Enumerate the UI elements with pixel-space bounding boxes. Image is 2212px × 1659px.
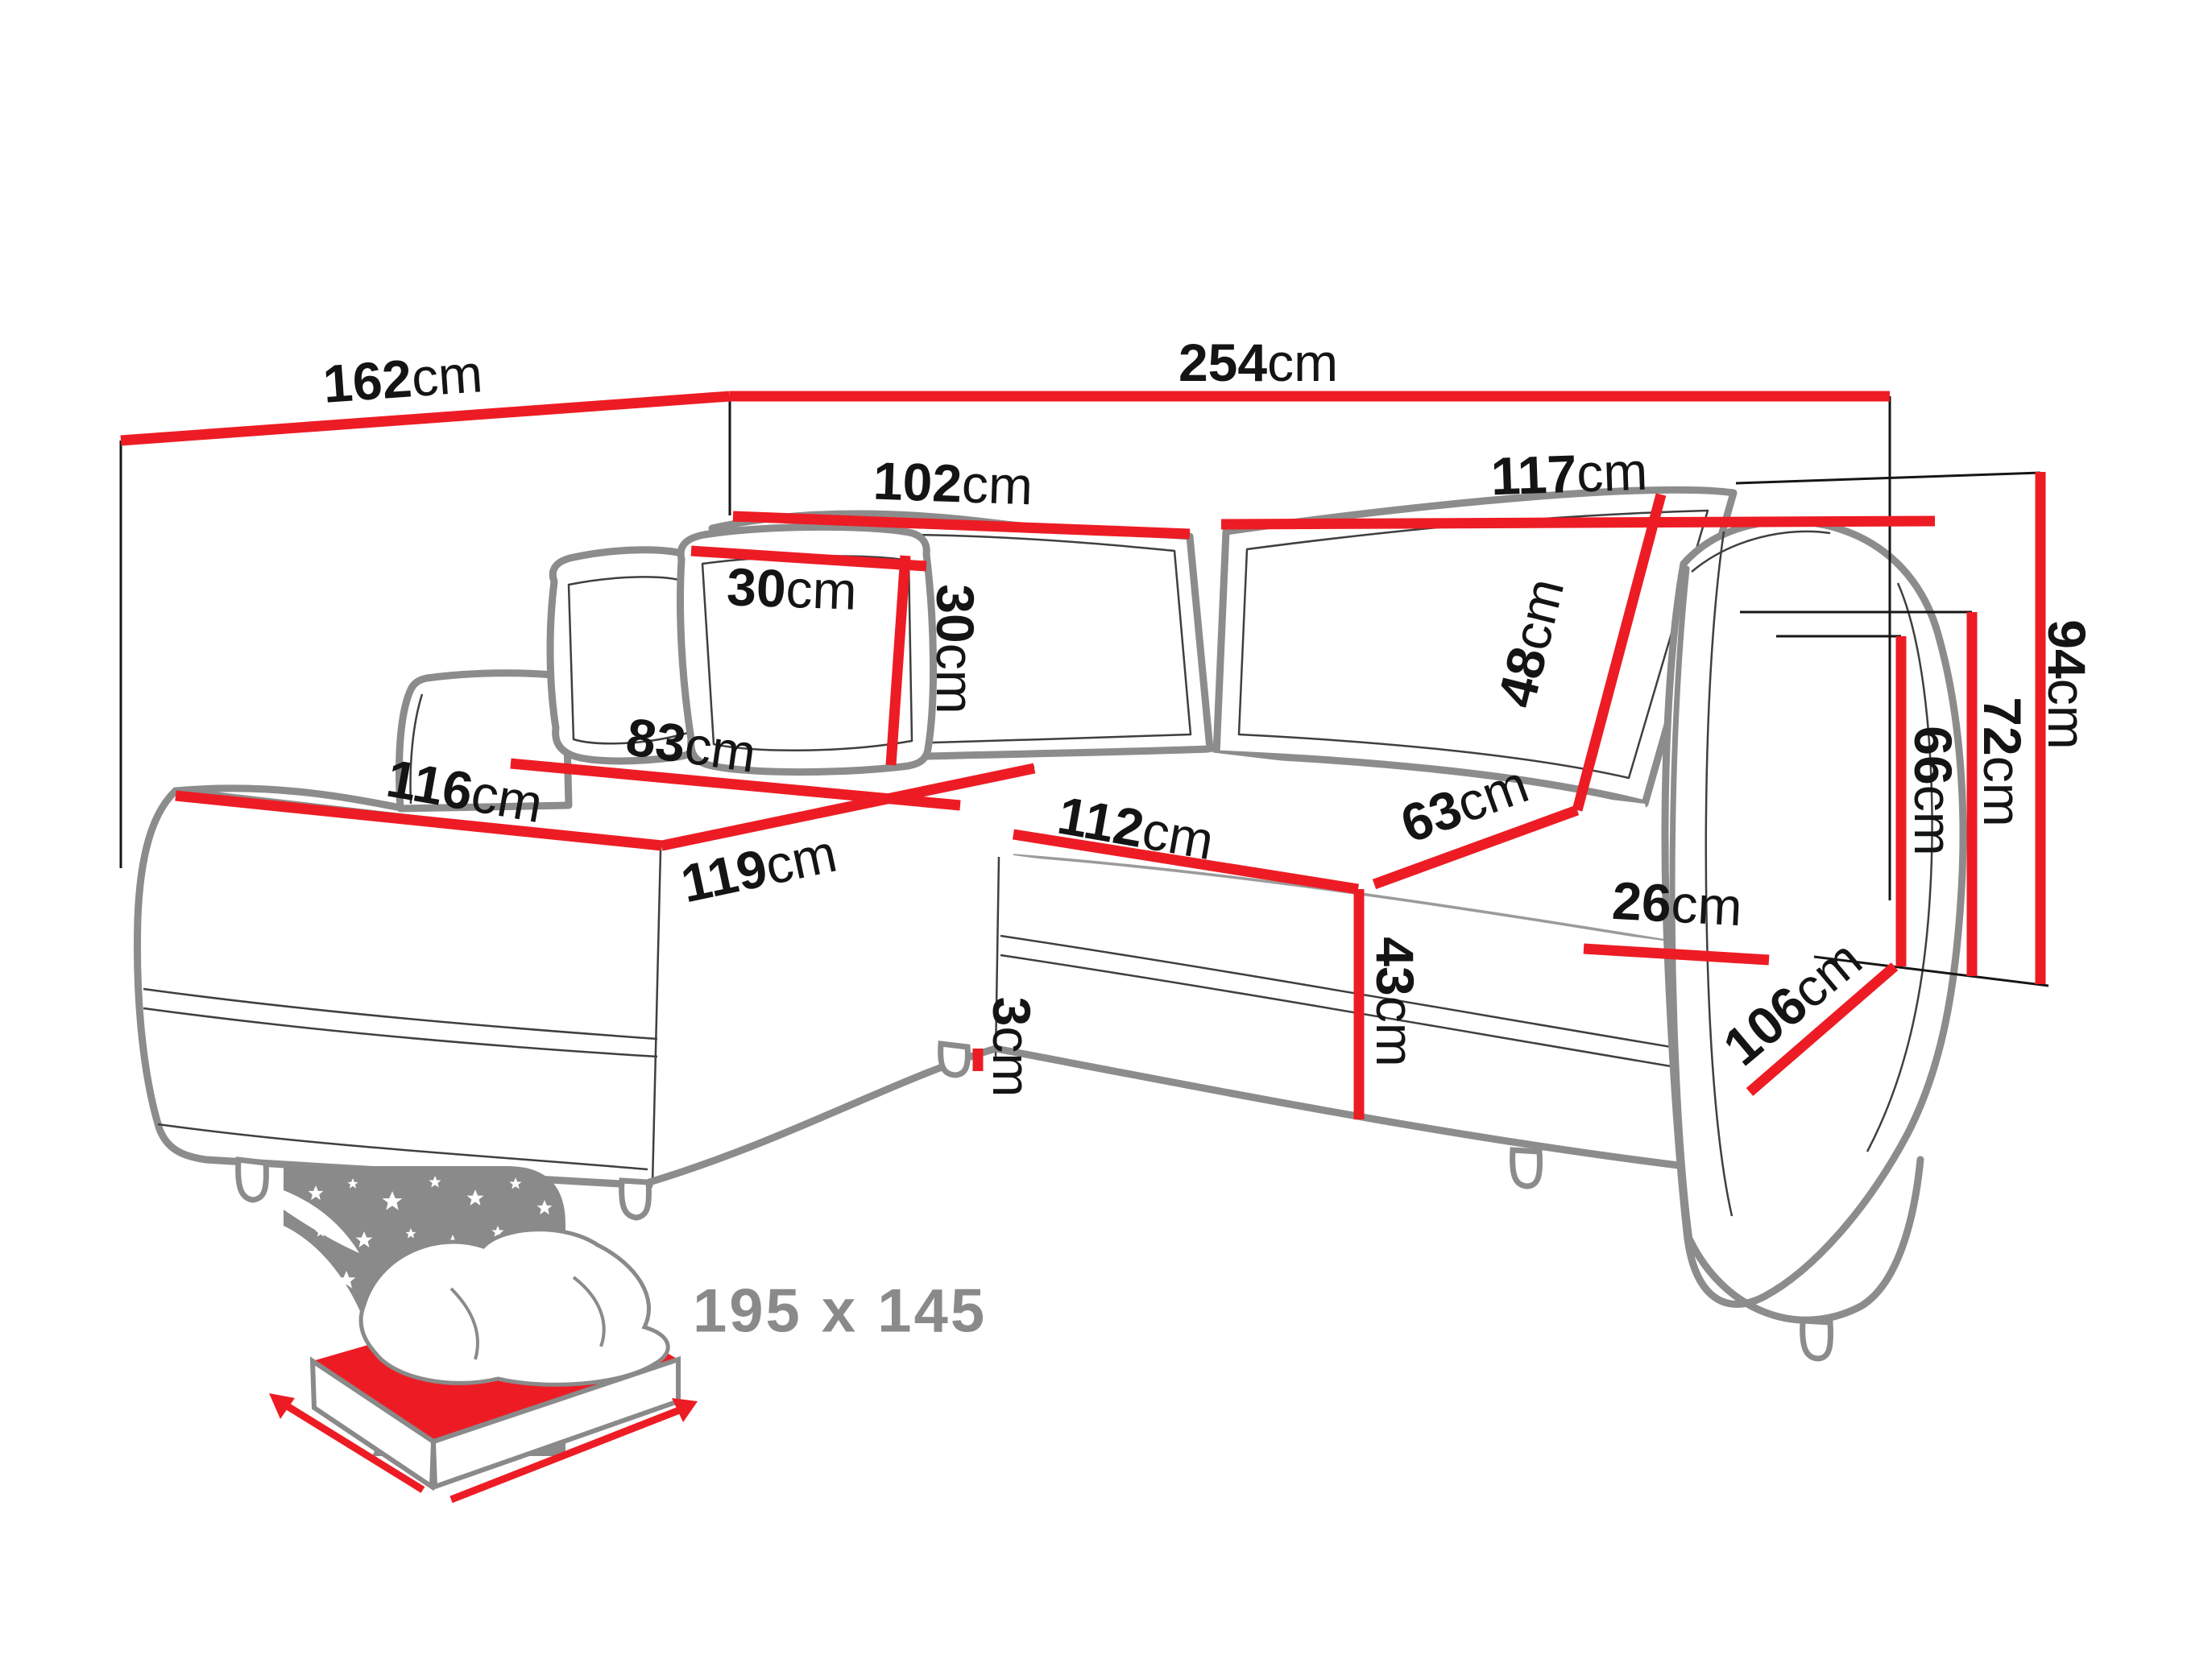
leg [622, 1181, 649, 1218]
backrest-right-cushion [1216, 490, 1734, 804]
leg [941, 1044, 968, 1075]
dim-label-pillow-width: 30cm [726, 556, 858, 621]
duvet-and-pillows [361, 1230, 668, 1385]
sofa-dimension-diagram: 162cm 254cm 102cm 117cm 30cm 30cm 48cm 8… [0, 0, 2212, 1659]
dim-label-armrest-width: 26cm [1610, 871, 1743, 937]
extension-line [1736, 473, 2040, 483]
dim-label-pillow-height: 30cm [926, 584, 985, 714]
dim-label-left-side-depth: 162cm [321, 343, 485, 414]
dim-label-armrest-height: 66cm [1903, 726, 1963, 855]
sleeping-area-label: 195 x 145 [693, 1277, 987, 1346]
dim-label-total-width: 254cm [1178, 333, 1338, 392]
leg [1803, 1321, 1831, 1359]
dim-label-total-height: 94cm [2037, 619, 2097, 749]
dim-label-backrest-height: 72cm [1973, 697, 2032, 826]
leg [1513, 1150, 1540, 1186]
leg [238, 1160, 267, 1200]
dim-label-backrest-left-width: 102cm [872, 451, 1034, 516]
diagram-canvas: 162cm 254cm 102cm 117cm 30cm 30cm 48cm 8… [0, 0, 2212, 1659]
dim-label-seat-height: 43cm [1365, 937, 1425, 1066]
dim-line-117 [1221, 521, 1935, 524]
dim-label-leg-height: 3cm [982, 997, 1042, 1098]
dim-label-backrest-right-width: 117cm [1490, 441, 1649, 507]
chaise-front-face [138, 791, 662, 1185]
